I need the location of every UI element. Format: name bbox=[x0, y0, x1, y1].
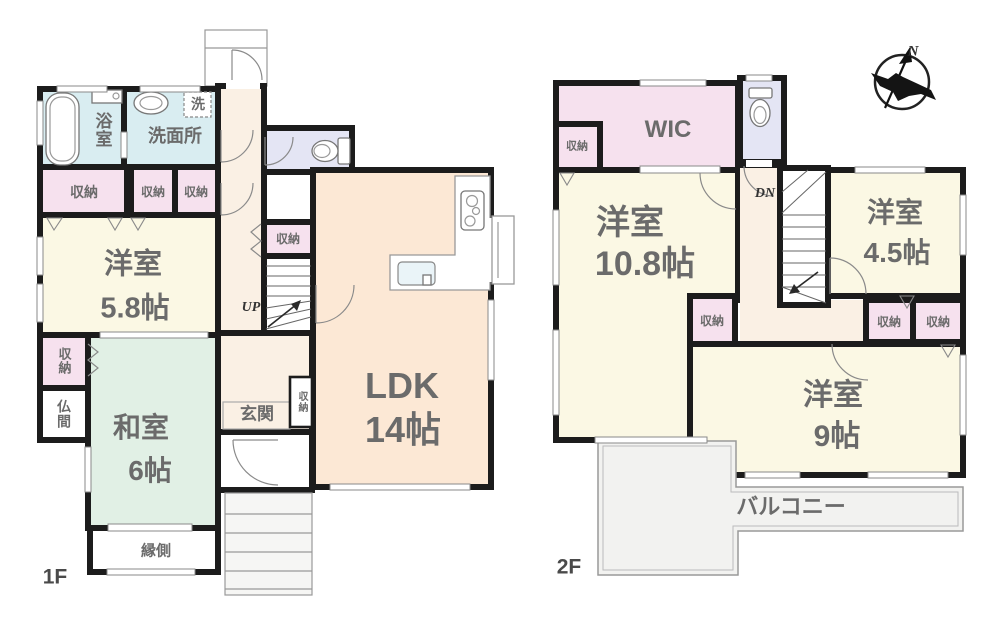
bathtub-icon bbox=[46, 93, 79, 165]
label-japanese-name: 和室 bbox=[113, 414, 169, 442]
label-western108-name: 洋室 bbox=[596, 206, 664, 240]
toilet-2f-icon bbox=[749, 88, 772, 127]
bay-window bbox=[488, 216, 514, 284]
label-stairs-up: UP bbox=[242, 301, 261, 315]
label-western9-size: 9帖 bbox=[814, 422, 861, 452]
label-storage-1f-c: 収納 bbox=[184, 186, 208, 198]
label-genkan: 玄関 bbox=[240, 406, 274, 423]
label-storage-2f-left: 収納 bbox=[566, 142, 588, 153]
label-western108-size: 10.8帖 bbox=[595, 247, 695, 281]
label-storage-2f-mid: 収納 bbox=[700, 315, 724, 327]
label-balcony: バルコニー bbox=[736, 496, 846, 518]
label-ldk-name: LDK bbox=[365, 368, 439, 404]
label-storage-1f-a: 収納 bbox=[70, 185, 98, 199]
label-washroom: 洗面所 bbox=[148, 127, 202, 145]
label-storage-1f-left: 収納 bbox=[58, 347, 71, 375]
label-laundry: 洗 bbox=[191, 97, 205, 111]
label-storage-genkan: 収納 bbox=[296, 391, 306, 413]
stairs-1f bbox=[264, 256, 313, 333]
label-butsuma: 仏間 bbox=[57, 399, 71, 429]
label-engawa: 縁側 bbox=[141, 544, 171, 559]
label-wic: WIC bbox=[645, 118, 692, 142]
label-storage-1f-b: 収納 bbox=[141, 186, 165, 198]
label-compass-n: N bbox=[908, 45, 919, 60]
label-storage-stairs: 収納 bbox=[276, 233, 300, 245]
label-japanese-size: 6帖 bbox=[128, 457, 172, 485]
toilet-1f-icon bbox=[312, 138, 350, 164]
hallway-1f bbox=[218, 86, 264, 336]
label-storage-2f-p2: 収納 bbox=[926, 316, 950, 328]
entrance-steps bbox=[225, 493, 312, 595]
label-floor1: 1F bbox=[43, 567, 68, 588]
label-stairs-down: DN bbox=[755, 187, 775, 201]
room-western-4-5 bbox=[828, 170, 963, 296]
washbasin-icon bbox=[134, 92, 168, 114]
label-western45-size: 4.5帖 bbox=[864, 239, 931, 267]
label-western9-name: 洋室 bbox=[803, 381, 863, 411]
back-porch bbox=[205, 30, 267, 86]
label-western58-size: 5.8帖 bbox=[100, 295, 169, 324]
stove-icon bbox=[461, 191, 484, 230]
toilet-2f-door-gap bbox=[746, 160, 772, 167]
label-bathroom: 浴室 bbox=[94, 112, 111, 148]
label-floor2: 2F bbox=[557, 557, 582, 578]
label-western45-name: 洋室 bbox=[867, 199, 923, 227]
void-under-stairs bbox=[264, 172, 313, 222]
kitchen-sink-icon bbox=[398, 262, 435, 285]
stairs-2f bbox=[780, 168, 828, 305]
compass-north-icon bbox=[871, 47, 936, 109]
label-western58-name: 洋室 bbox=[104, 251, 162, 280]
label-storage-2f-p1: 収納 bbox=[877, 316, 901, 328]
room-entrance-inner bbox=[218, 432, 312, 490]
floorplan-page: 浴室 洗面所 洗 収納 収納 収納 洋室 5.8帖 収納 仏間 和室 6帖 縁側… bbox=[0, 0, 1000, 637]
label-ldk-size: 14帖 bbox=[365, 412, 441, 448]
